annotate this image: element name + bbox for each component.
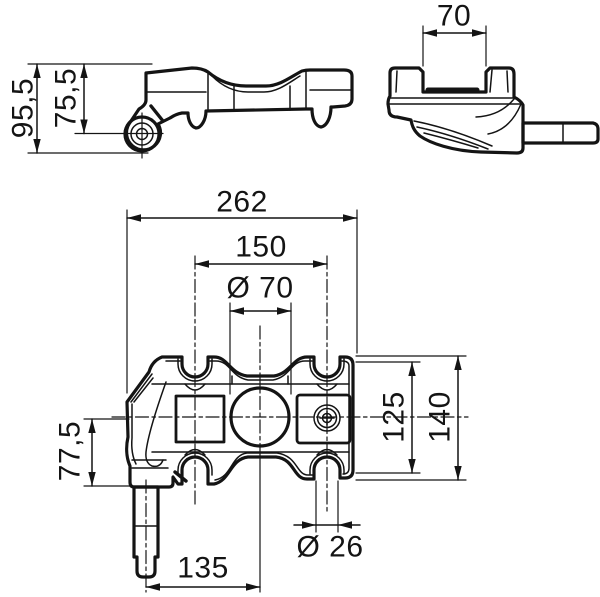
dim-label-height-to-axis: 75,5: [50, 68, 83, 128]
technical-drawing: 95,5 75,5 70 262 150 Ø 70: [0, 0, 600, 597]
end-view-shaft: [523, 123, 598, 143]
centerlines: [112, 256, 468, 592]
dim-label-flange-outer-height: 140: [424, 391, 457, 443]
end-view-body: [388, 68, 523, 153]
dim-label-bore-diameter: Ø 70: [226, 272, 293, 305]
right-window: [297, 395, 350, 443]
wheel-neck-web: [151, 106, 163, 121]
dimension-slot-width: 70: [423, 0, 486, 66]
dim-label-flange-inner-height: 125: [378, 391, 411, 443]
end-view-details: [389, 70, 563, 149]
drawing-root: 95,5 75,5 70 262 150 Ø 70: [7, 0, 599, 592]
dimension-arm-height: 77,5: [54, 419, 132, 486]
side-view: [125, 68, 352, 158]
dim-label-slot-diameter: Ø 26: [296, 531, 363, 564]
dim-label-pin-offset: 135: [177, 552, 229, 585]
dim-label-bolt-spacing: 150: [235, 231, 287, 264]
dimension-pin-offset: 135: [146, 552, 260, 588]
dim-label-overall-width: 262: [216, 186, 268, 219]
dim-label-slot-width: 70: [437, 0, 471, 33]
dim-label-total-height: 95,5: [7, 78, 40, 138]
side-view-body: [126, 68, 352, 150]
dimension-bolt-spacing: 150: [195, 231, 327, 265]
dimension-flange-outer-height: 140: [356, 356, 466, 480]
dimension-slot-diameter: Ø 26: [294, 481, 364, 564]
end-view: [388, 68, 598, 153]
side-view-details: [146, 71, 352, 110]
dim-label-arm-height: 77,5: [54, 421, 87, 481]
drawing-canvas: 95,5 75,5 70 262 150 Ø 70: [0, 0, 600, 597]
left-window: [176, 396, 224, 442]
